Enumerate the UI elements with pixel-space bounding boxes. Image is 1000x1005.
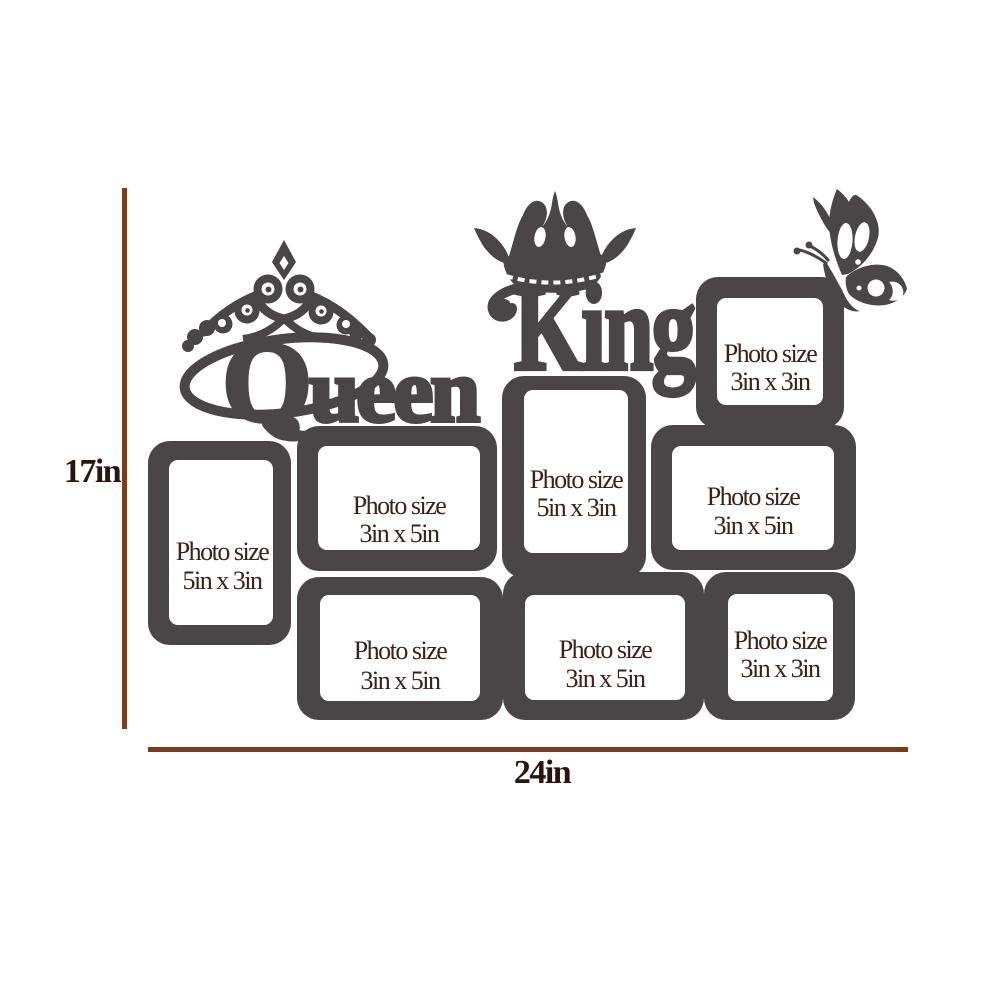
svg-text:Photo size: Photo size [354,636,448,665]
svg-text:3in x 5in: 3in x 5in [566,664,646,693]
svg-text:24in: 24in [514,754,572,791]
svg-text:17in: 17in [64,453,122,490]
svg-text:3in x 5in: 3in x 5in [360,519,440,548]
svg-text:3in x 5in: 3in x 5in [361,666,441,695]
svg-text:3in x 3in: 3in x 3in [731,367,811,396]
svg-text:5in x 3in: 5in x 3in [537,493,617,522]
svg-text:Photo size: Photo size [724,339,818,368]
svg-text:3in x 3in: 3in x 3in [741,654,821,683]
svg-text:Photo size: Photo size [734,626,828,655]
svg-text:Photo size: Photo size [176,537,270,566]
svg-text:3in x 5in: 3in x 5in [714,511,794,540]
svg-text:Photo size: Photo size [530,465,624,494]
svg-text:Photo size: Photo size [353,491,447,520]
svg-text:Photo size: Photo size [559,635,653,664]
svg-text:5in x 3in: 5in x 3in [183,566,263,595]
svg-text:Photo size: Photo size [707,482,801,511]
